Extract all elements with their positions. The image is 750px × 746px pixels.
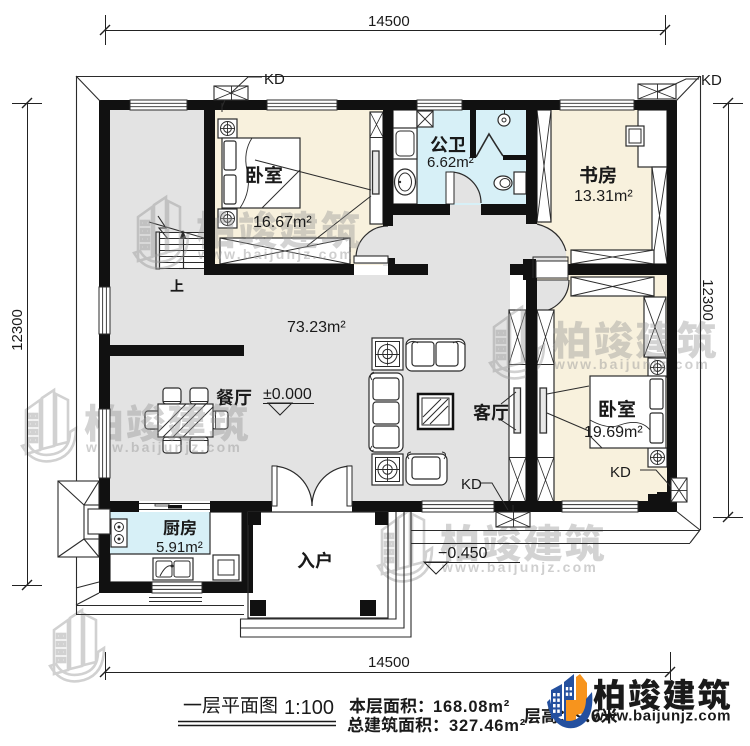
svg-text:6.62m²: 6.62m²	[427, 154, 474, 171]
svg-text:−0.450: −0.450	[438, 545, 487, 562]
svg-text:1:100: 1:100	[284, 697, 334, 719]
svg-text:KD: KD	[610, 464, 631, 481]
svg-text:16.67m²: 16.67m²	[253, 214, 312, 231]
svg-text:KD: KD	[461, 476, 482, 493]
svg-text:www.baijunjz.com: www.baijunjz.com	[197, 246, 354, 262]
svg-text:5.91m²: 5.91m²	[156, 539, 203, 556]
svg-text:www.baijunjz.com: www.baijunjz.com	[553, 356, 710, 372]
svg-text:www.baijunjz.com: www.baijunjz.com	[591, 708, 731, 725]
svg-text:19.69m²: 19.69m²	[584, 424, 643, 441]
svg-text:KD: KD	[701, 72, 722, 89]
svg-text:12300: 12300	[699, 279, 716, 321]
svg-text:13.31m²: 13.31m²	[574, 188, 633, 205]
svg-text:73.23m²: 73.23m²	[287, 319, 346, 336]
svg-text:±0.000: ±0.000	[263, 386, 312, 403]
svg-text:327.46m²: 327.46m²	[449, 717, 526, 735]
svg-text:KD: KD	[264, 71, 285, 88]
svg-text:14500: 14500	[368, 654, 410, 671]
svg-text:14500: 14500	[368, 13, 410, 30]
svg-text:12300: 12300	[9, 309, 26, 351]
svg-text:168.08m²: 168.08m²	[433, 698, 510, 716]
